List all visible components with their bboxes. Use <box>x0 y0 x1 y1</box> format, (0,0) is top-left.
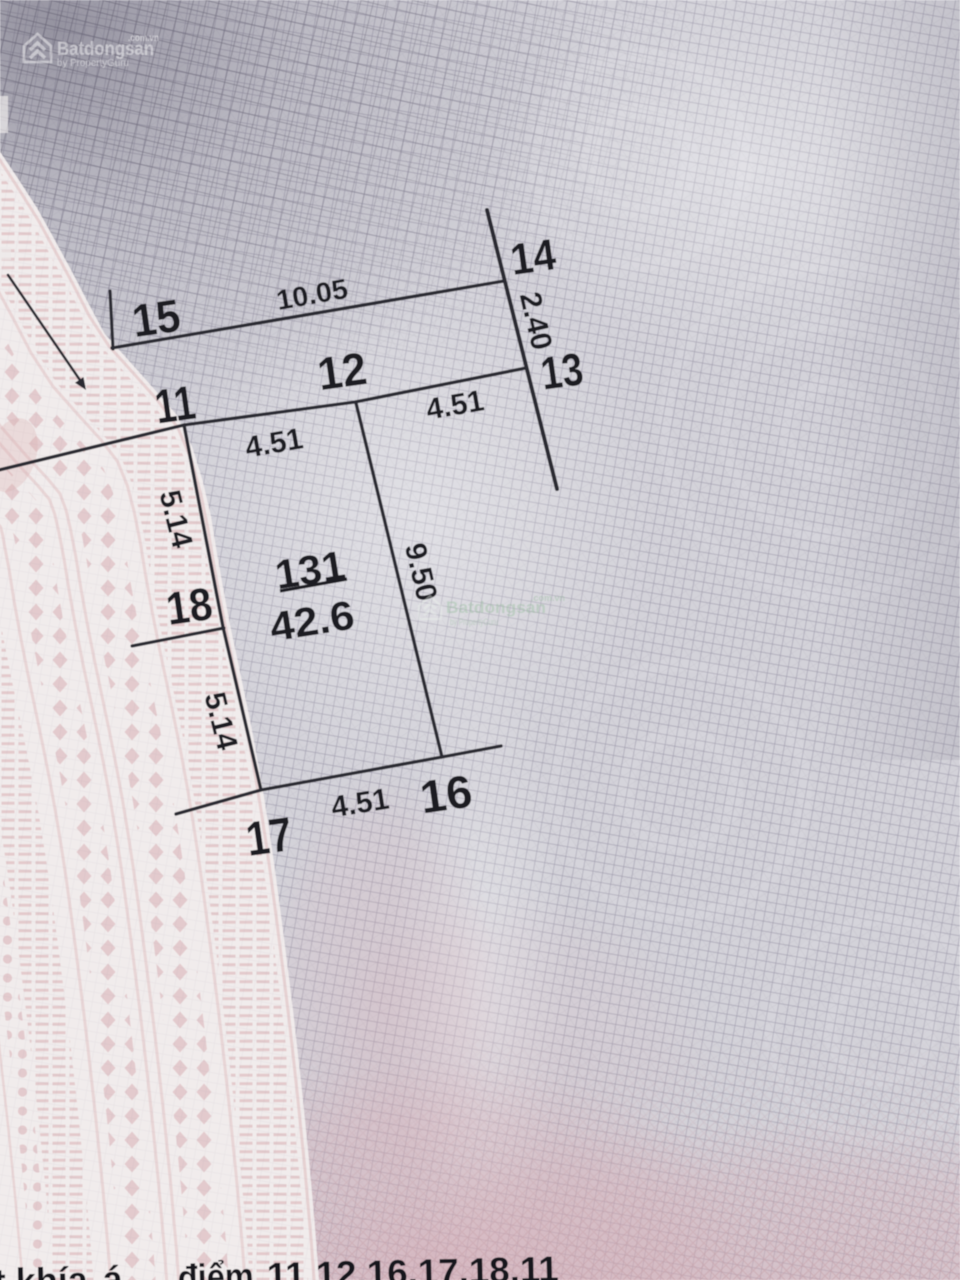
svg-text:16: 16 <box>417 765 476 824</box>
svg-text:á: á <box>102 1258 124 1280</box>
svg-text:.com.vn: .com.vn <box>531 593 565 603</box>
svg-text:by PropertyGuru: by PropertyGuru <box>450 617 498 627</box>
svg-text:11,12,16,17,18,11: 11,12,16,17,18,11 <box>266 1248 559 1280</box>
svg-text:by PropertyGuru: by PropertyGuru <box>57 58 129 69</box>
svg-text:12: 12 <box>314 342 370 400</box>
svg-text:18: 18 <box>163 577 216 635</box>
svg-text:điểm: điểm <box>177 1255 254 1280</box>
svg-text:t khía: t khía <box>0 1259 89 1280</box>
svg-text:11: 11 <box>152 376 199 434</box>
svg-text:14: 14 <box>507 230 559 285</box>
svg-text:.com.vn: .com.vn <box>128 33 159 44</box>
svg-text:15: 15 <box>129 289 184 347</box>
svg-text:17: 17 <box>243 808 296 867</box>
svg-text:13: 13 <box>537 342 586 399</box>
